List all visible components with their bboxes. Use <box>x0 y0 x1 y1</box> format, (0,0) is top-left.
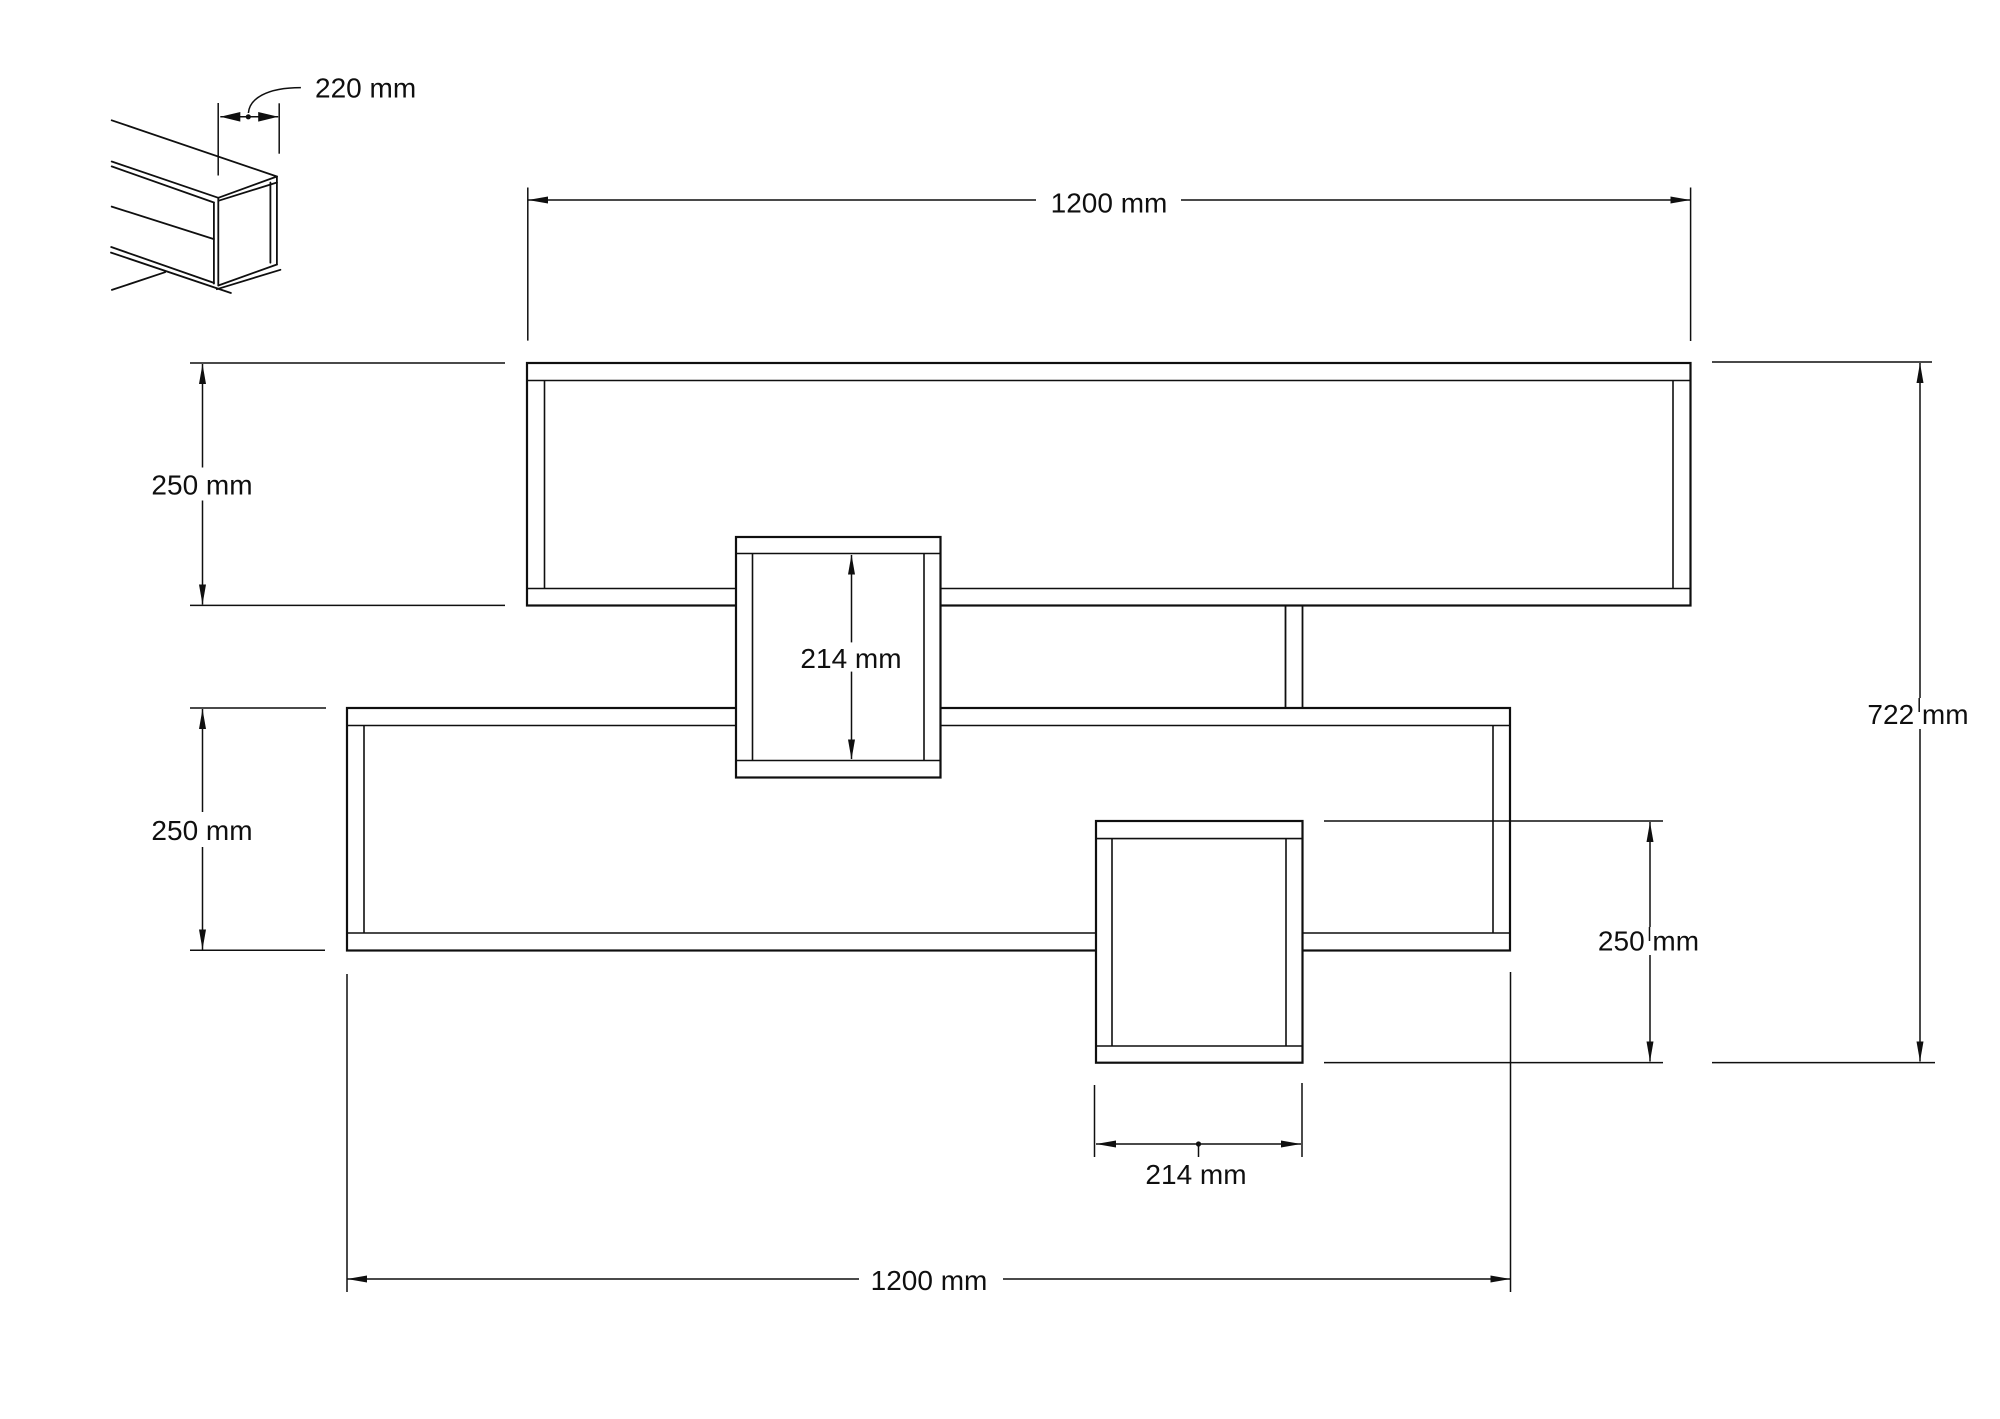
svg-text:220 mm: 220 mm <box>315 73 416 104</box>
svg-text:214 mm: 214 mm <box>800 643 901 674</box>
svg-text:214 mm: 214 mm <box>1145 1159 1246 1190</box>
svg-text:1200 mm: 1200 mm <box>1051 188 1168 219</box>
svg-text:250 mm: 250 mm <box>151 470 252 501</box>
svg-text:722 mm: 722 mm <box>1867 699 1968 730</box>
svg-text:250 mm: 250 mm <box>151 815 252 846</box>
svg-text:1200 mm: 1200 mm <box>871 1265 988 1296</box>
svg-text:250 mm: 250 mm <box>1598 926 1699 957</box>
